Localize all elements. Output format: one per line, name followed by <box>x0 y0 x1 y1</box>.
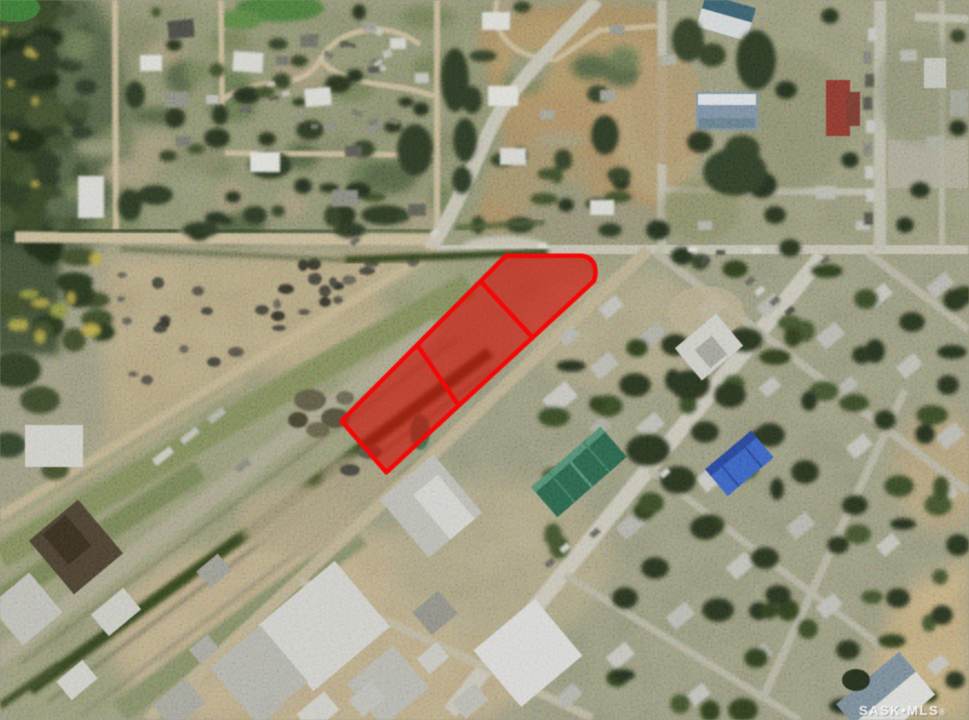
svg-text:SASK•MLS®: SASK•MLS® <box>859 703 947 718</box>
